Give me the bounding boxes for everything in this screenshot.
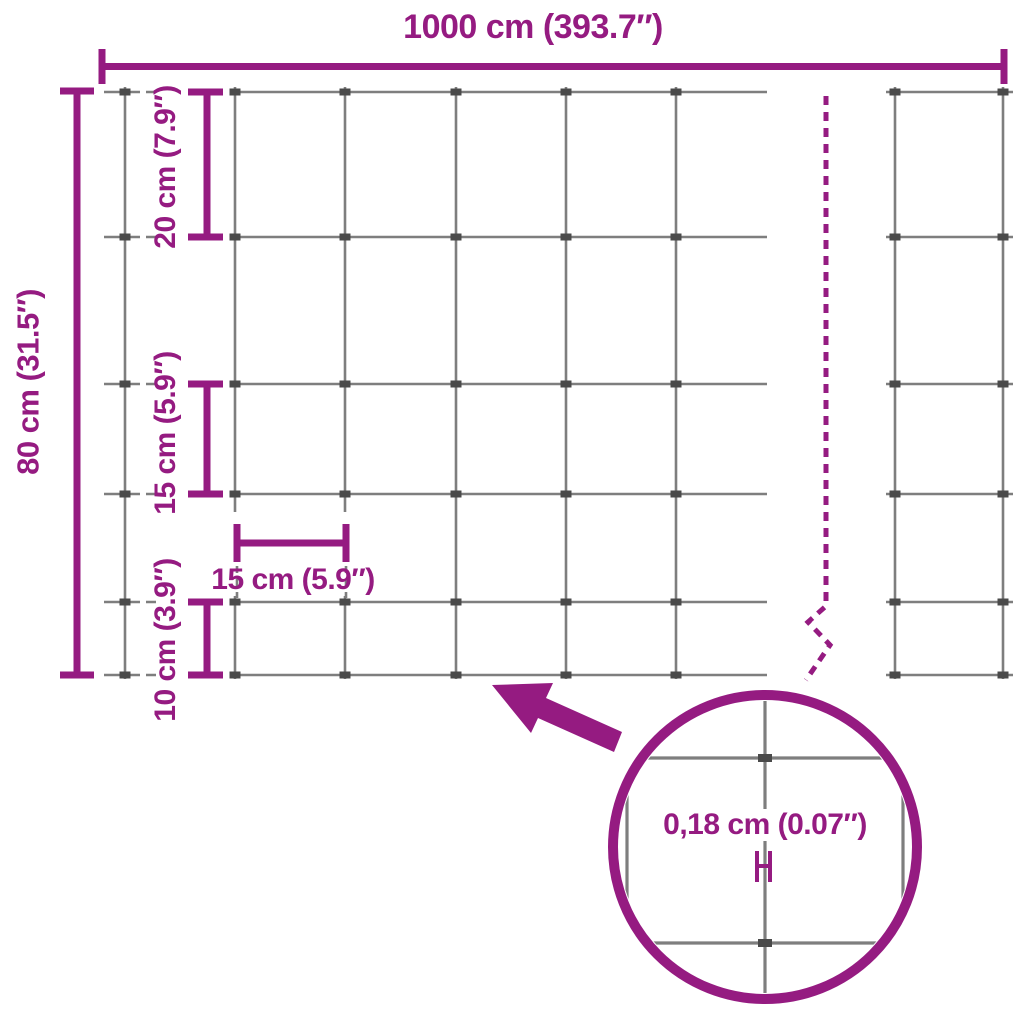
- row-gap-bottom-label: 10 cm (3.9″): [151, 558, 181, 721]
- wire-thickness-label: 0,18 cm (0.07″): [658, 809, 872, 841]
- column-gap-label: 15 cm (5.9″): [211, 565, 374, 595]
- zoom-arrow-icon: [492, 683, 622, 752]
- total-width-label: 1000 cm (393.7″): [403, 10, 663, 44]
- break-line: [806, 96, 830, 680]
- fence-mesh-dimension-diagram: 1000 cm (393.7″) 80 cm (31.5″) 20 cm (7.…: [0, 0, 1024, 1024]
- row-gap-middle-label: 15 cm (5.9″): [151, 351, 181, 514]
- total-height-label: 80 cm (31.5″): [13, 289, 44, 475]
- dimension-lines: [60, 49, 1004, 675]
- row-gap-top-label: 20 cm (7.9″): [151, 85, 181, 248]
